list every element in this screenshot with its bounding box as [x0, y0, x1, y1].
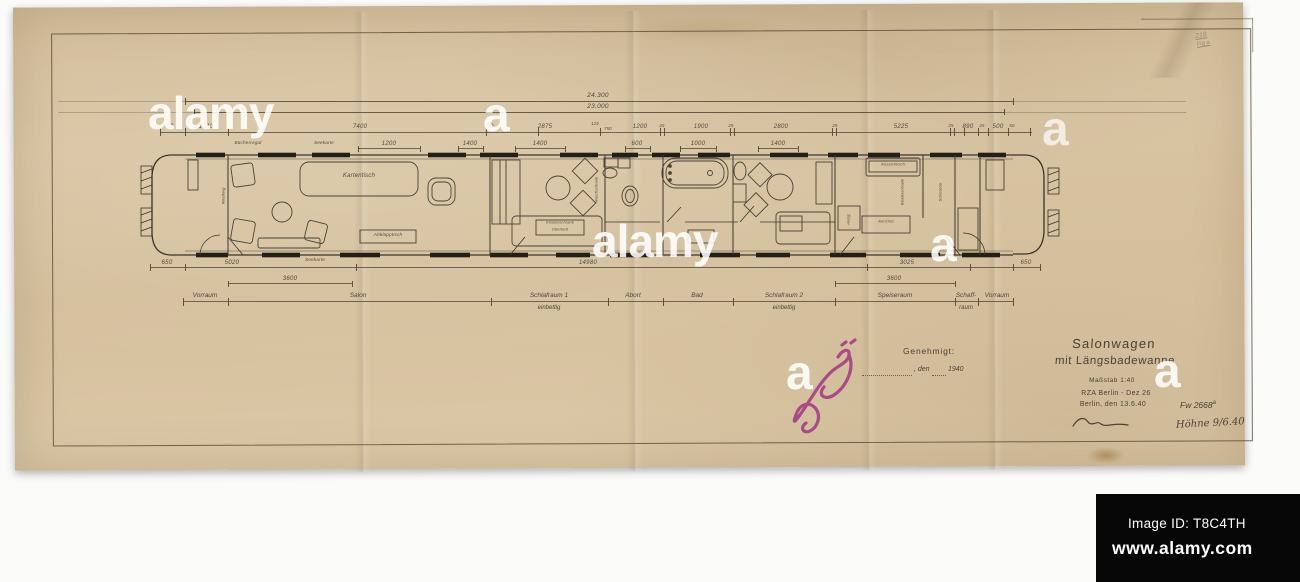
plan-label: Waschschrank	[595, 177, 599, 203]
plan-label: Schiebetür	[939, 183, 943, 202]
room-label: Salon	[350, 293, 367, 305]
alamy-a-mark: a	[930, 222, 957, 270]
alamy-watermark: alamy	[592, 218, 717, 264]
approval-label: Genehmigt:	[903, 346, 955, 356]
approval-dotted-line	[932, 374, 946, 376]
dim-line-total	[185, 101, 1013, 102]
alamy-a-mark: a	[1154, 348, 1181, 396]
drawing-number: Fw 2668a	[1180, 400, 1216, 410]
alamy-watermark: alamy	[148, 90, 273, 136]
room-label: Schlafraum 1einbettig	[530, 293, 568, 311]
title-scale: Maßstab 1:40	[1089, 377, 1135, 384]
dim-label: 3600	[283, 276, 298, 282]
dim-label: 25	[659, 124, 664, 128]
dim-label: 50	[1009, 124, 1014, 128]
draftsman-signature	[1070, 412, 1132, 432]
dim-label: 3600	[887, 276, 902, 282]
plan-label: Oberbett	[552, 228, 568, 232]
alamy-a-mark: a	[483, 92, 510, 140]
pencil-note: 218 Fig a	[1195, 31, 1211, 50]
drawing-border-corner	[1252, 18, 1253, 52]
title-place-date: Berlin, den 13.6.40	[1080, 401, 1146, 408]
dim-label: 2875	[538, 124, 553, 130]
approval-year: 1940	[948, 366, 964, 373]
dim-label: 750	[604, 127, 612, 131]
plan-label: Windfang	[222, 188, 226, 205]
alamy-url: www.alamy.com	[1112, 538, 1253, 559]
dim-label: 25	[979, 124, 984, 128]
dim-label: 23.000	[587, 104, 609, 111]
room-label: Schaff-raum	[956, 293, 977, 311]
dim-label: 890	[963, 124, 974, 130]
dim-label: 5225	[894, 124, 909, 130]
alamy-a-mark: a	[786, 350, 813, 398]
title-office: RZA Berlin - Dez 26	[1081, 390, 1150, 397]
alamy-a-mark: a	[1042, 106, 1069, 154]
dim-label: 7400	[353, 124, 368, 130]
plan-label: Anrichte	[878, 220, 894, 224]
dim-line-inner	[194, 112, 1004, 113]
plan-label: Seekarte	[305, 258, 325, 263]
room-label: Bad	[691, 293, 703, 305]
alamy-image-id: Image ID: T8C4TH	[1128, 516, 1246, 531]
plan-label: Seekarte	[314, 141, 334, 146]
room-label: Vorraum	[193, 293, 218, 305]
dim-line-chain	[160, 132, 1032, 133]
plan-label: Bücherregal	[235, 141, 262, 146]
dim-label: 1900	[694, 124, 709, 130]
room-label: Vorraum	[985, 293, 1010, 305]
title-line1: Salonwagen	[1072, 336, 1157, 351]
dim-line-lower	[228, 283, 352, 284]
plan-label: Kleiderschrank	[901, 179, 905, 205]
dim-label: 24.300	[587, 93, 609, 100]
dim-label: 1200	[633, 124, 648, 130]
room-label: Speiseraum	[878, 293, 913, 305]
dim-label: 500	[993, 124, 1004, 130]
plan-label: Kleiderschrank	[546, 221, 574, 225]
dim-label: 2800	[774, 124, 789, 130]
room-label: Schlafraum 2einbettig	[765, 293, 803, 311]
plan-label: Heizg.	[847, 213, 851, 224]
paper-stain	[1087, 447, 1125, 464]
dim-label: 25	[832, 124, 837, 128]
plan-label: Abklapptisch	[374, 233, 402, 238]
alamy-id-bar: Image ID: T8C4TH www.alamy.com	[1096, 494, 1300, 582]
dim-line-lower	[835, 283, 955, 284]
room-label: Abort	[625, 293, 641, 305]
dim-label: 25	[728, 124, 733, 128]
plan-label: Kartentisch	[343, 173, 375, 179]
dim-label: 25	[948, 124, 953, 128]
approval-date-text: , den	[914, 366, 930, 373]
plan-label: Ausziehtisch	[881, 163, 905, 167]
dim-label: 125	[591, 122, 599, 126]
